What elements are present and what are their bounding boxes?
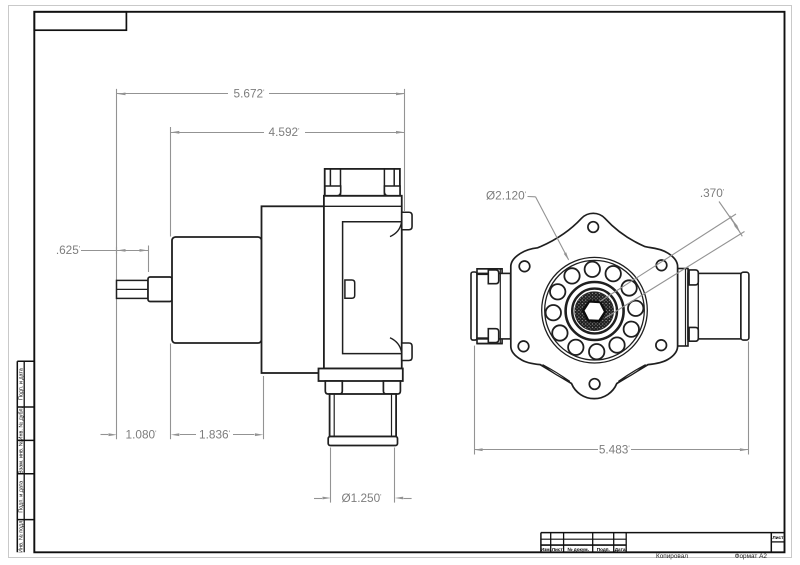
svg-text:4.592': 4.592' [269, 125, 300, 139]
svg-text:Подп. и дата: Подп. и дата [18, 368, 24, 400]
svg-text:Копировал: Копировал [656, 553, 688, 560]
svg-text:5.672': 5.672' [234, 87, 265, 101]
svg-text:.625': .625' [56, 243, 80, 257]
svg-text:Формат А2: Формат А2 [735, 553, 768, 560]
svg-text:Дата: Дата [615, 547, 626, 552]
svg-text:Инв. № дубл.: Инв. № дубл. [18, 407, 24, 440]
svg-text:Подп.: Подп. [597, 547, 610, 552]
svg-text:№ докум.: № докум. [567, 547, 589, 552]
svg-text:.370': .370' [700, 186, 724, 200]
svg-text:Лист: Лист [552, 547, 564, 552]
svg-text:Лист: Лист [772, 535, 784, 540]
svg-text:5.483': 5.483' [599, 442, 630, 456]
svg-text:1.080': 1.080' [126, 428, 157, 442]
svg-text:Ø2.120': Ø2.120' [486, 188, 526, 202]
svg-text:1.836': 1.836' [199, 428, 230, 442]
svg-text:Изм.: Изм. [541, 547, 551, 552]
svg-text:Инв. № подл.: Инв. № подл. [18, 519, 24, 553]
svg-text:Подп. и дата: Подп. и дата [18, 481, 24, 513]
svg-text:Ø1.250': Ø1.250' [341, 491, 381, 505]
svg-text:Взам. инв. №: Взам. инв. № [18, 440, 24, 474]
